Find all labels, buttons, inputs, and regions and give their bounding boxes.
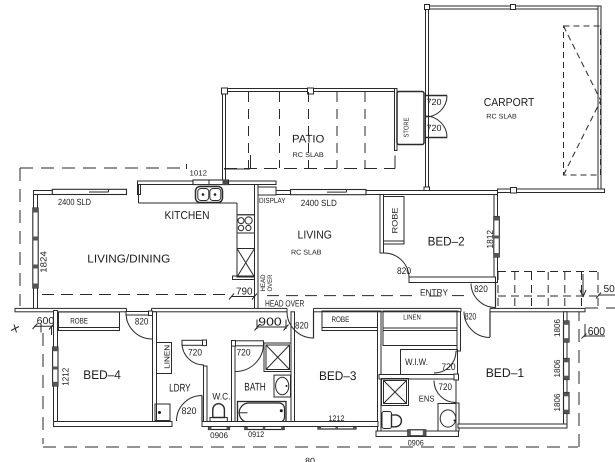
svg-text:720: 720 bbox=[188, 348, 202, 359]
svg-text:0906: 0906 bbox=[408, 438, 424, 447]
svg-text:HEAD OVER: HEAD OVER bbox=[265, 299, 305, 309]
svg-text:1806: 1806 bbox=[552, 393, 562, 411]
svg-text:RC SLAB: RC SLAB bbox=[293, 152, 325, 159]
svg-text:820: 820 bbox=[465, 311, 477, 322]
svg-text:HEAD: HEAD bbox=[260, 274, 267, 291]
svg-text:0912: 0912 bbox=[248, 430, 264, 439]
svg-text:W.C.: W.C. bbox=[212, 392, 230, 403]
svg-text:820: 820 bbox=[397, 266, 411, 277]
svg-text:LIVING: LIVING bbox=[298, 230, 333, 242]
svg-text:820: 820 bbox=[295, 320, 309, 331]
svg-text:ROBE: ROBE bbox=[332, 315, 350, 324]
svg-text:1824: 1824 bbox=[39, 251, 49, 273]
svg-text:1806: 1806 bbox=[552, 319, 562, 337]
svg-text:2400 SLD: 2400 SLD bbox=[301, 198, 337, 208]
svg-text:ENTRY: ENTRY bbox=[420, 287, 448, 297]
svg-text:BATH: BATH bbox=[244, 382, 266, 394]
svg-text:ROBE: ROBE bbox=[70, 317, 88, 326]
svg-text:2400 SLD: 2400 SLD bbox=[58, 197, 91, 207]
svg-text:720: 720 bbox=[442, 362, 456, 373]
svg-text:LIVING/DINING: LIVING/DINING bbox=[87, 254, 170, 266]
svg-text:720: 720 bbox=[427, 123, 442, 133]
svg-text:ENS: ENS bbox=[419, 393, 435, 403]
svg-text:500: 500 bbox=[604, 284, 615, 295]
svg-text:LINEN: LINEN bbox=[403, 312, 421, 321]
svg-text:0906: 0906 bbox=[210, 431, 228, 440]
svg-text:DISPLAY: DISPLAY bbox=[259, 196, 286, 205]
svg-text:600: 600 bbox=[37, 316, 55, 327]
svg-text:1812: 1812 bbox=[485, 230, 495, 249]
svg-text:OVER: OVER bbox=[267, 274, 274, 291]
svg-text:1806: 1806 bbox=[552, 359, 562, 377]
svg-text:820: 820 bbox=[182, 406, 197, 417]
svg-text:PATIO: PATIO bbox=[292, 134, 325, 146]
svg-text:1212: 1212 bbox=[61, 368, 71, 386]
svg-text:KITCHEN: KITCHEN bbox=[165, 210, 210, 222]
svg-text:80: 80 bbox=[305, 456, 315, 462]
svg-text:720: 720 bbox=[237, 348, 251, 359]
svg-text:820: 820 bbox=[135, 317, 149, 328]
svg-text:720: 720 bbox=[439, 382, 453, 393]
svg-text:CARPORT: CARPORT bbox=[484, 97, 535, 109]
svg-text:820: 820 bbox=[474, 284, 488, 295]
svg-text:1012: 1012 bbox=[190, 169, 208, 178]
svg-text:W.I.W.: W.I.W. bbox=[405, 357, 428, 368]
svg-text:BED–3: BED–3 bbox=[319, 369, 357, 383]
svg-text:720: 720 bbox=[427, 97, 442, 107]
svg-text:RC SLAB: RC SLAB bbox=[291, 249, 322, 256]
svg-text:790: 790 bbox=[236, 287, 253, 298]
svg-text:LDRY: LDRY bbox=[169, 383, 191, 395]
svg-text:BED–4: BED–4 bbox=[83, 368, 121, 382]
svg-text:BED–1: BED–1 bbox=[486, 366, 525, 380]
svg-text:LINEN: LINEN bbox=[163, 345, 172, 369]
svg-text:RC SLAB: RC SLAB bbox=[486, 113, 517, 120]
svg-text:BED–2: BED–2 bbox=[428, 234, 465, 248]
svg-text:STORE: STORE bbox=[404, 117, 411, 137]
svg-text:ROBE: ROBE bbox=[391, 208, 400, 234]
